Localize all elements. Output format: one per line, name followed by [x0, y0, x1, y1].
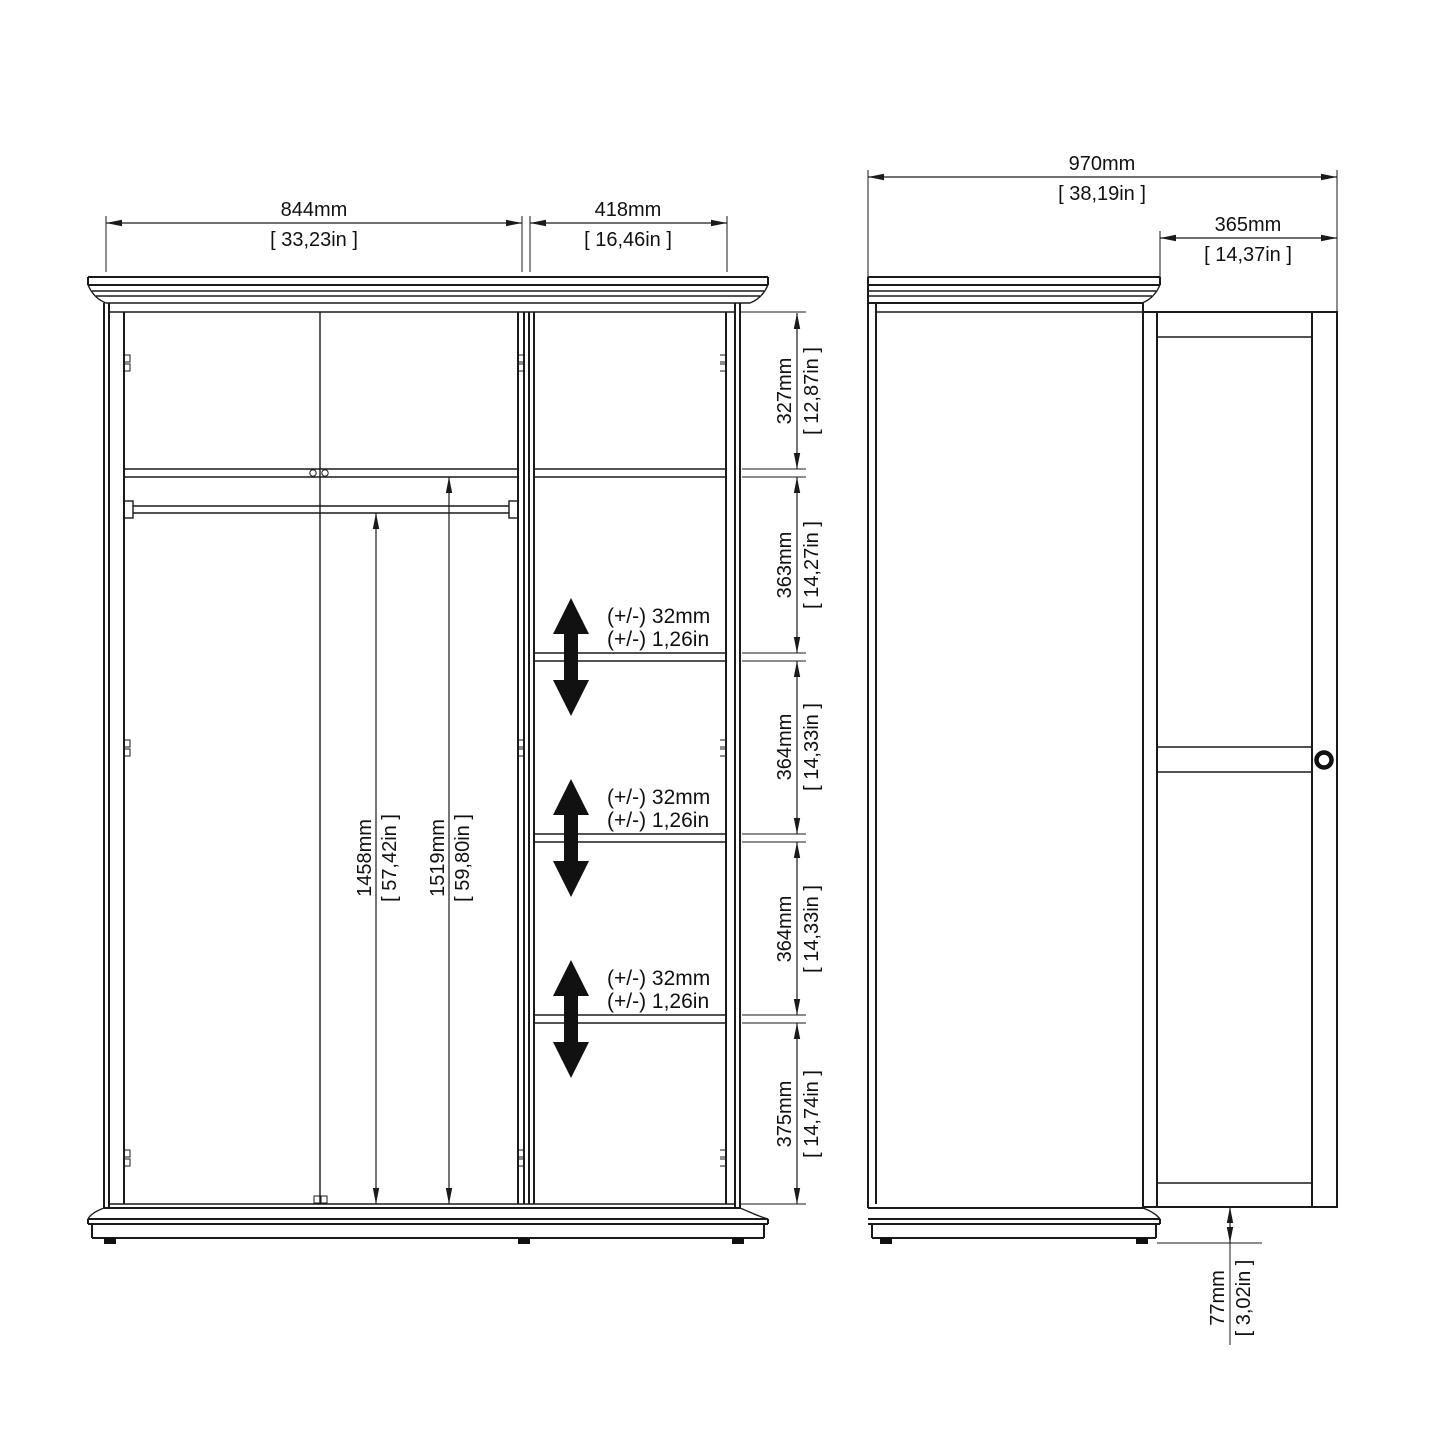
section-label-mm: 363mm: [774, 532, 796, 599]
adjustable-label-inch: (+/-) 1,26in: [607, 809, 709, 832]
section-label-mm: 375mm: [774, 1081, 796, 1148]
left-stile: [104, 303, 124, 1208]
side-view: 970mm [ 38,19in ] 365mm [ 14,37in ]: [868, 153, 1337, 1345]
left-top-shelf: [124, 469, 518, 477]
door-knob: [1317, 753, 1332, 768]
cornice-top-band: [88, 277, 768, 285]
right-shelf-2: [534, 653, 726, 661]
adjustable-shelf-indicators: (+/-) 32mm (+/-) 1,26in (+/-) 32mm (+/-)…: [553, 598, 710, 1078]
back-edge: [868, 277, 876, 1208]
dim-plinth-height: 77mm [ 3,02in ]: [1157, 1207, 1262, 1345]
section-label-mm: 364mm: [774, 714, 796, 781]
front-view: 844mm [ 33,23in ] 418mm [ 16,46in ] 327m…: [88, 199, 823, 1244]
base-bands: [868, 1219, 1160, 1238]
section-label-inch: [ 14,33in ]: [801, 703, 823, 791]
door-outline: [1143, 312, 1337, 1207]
side-base: [868, 1208, 1160, 1244]
shelf-pin-hole: [322, 470, 328, 476]
foot: [104, 1238, 116, 1244]
foot: [880, 1238, 892, 1244]
adjustable-label-inch: (+/-) 1,26in: [607, 628, 709, 651]
base-flare-curve: [1143, 1208, 1160, 1219]
foot: [1136, 1238, 1148, 1244]
section-label-inch: [ 14,74in ]: [801, 1070, 823, 1158]
dim-width-right: 418mm [ 16,46in ]: [530, 199, 727, 272]
dim-label-mm: 365mm: [1215, 214, 1282, 236]
dim-rail-height: 1458mm [ 57,42in ]: [354, 513, 401, 1204]
open-door: [1143, 312, 1337, 1207]
dim-label-inch: [ 14,37in ]: [1204, 244, 1292, 266]
dim-label-mm: 1458mm: [354, 819, 376, 897]
center-divider: [518, 312, 534, 1204]
adjustable-label-mm: (+/-) 32mm: [607, 967, 710, 990]
rail-bracket-right: [509, 501, 518, 518]
front-shelves: [124, 469, 726, 1023]
double-arrow-icon: [553, 960, 589, 1078]
dim-label-mm: 970mm: [1069, 153, 1136, 175]
dim-interior-height: 1519mm [ 59,80in ]: [427, 477, 474, 1204]
adjustable-label-mm: (+/-) 32mm: [607, 786, 710, 809]
dim-label-mm: 844mm: [281, 199, 348, 221]
extension-lines: [740, 312, 806, 1204]
section-label-mm: 364mm: [774, 896, 796, 963]
rail-bracket-left: [124, 501, 133, 518]
dim-door-width: 365mm [ 14,37in ]: [1160, 214, 1337, 277]
dim-label-inch: [ 33,23in ]: [270, 229, 358, 251]
cornice-molding-lines: [92, 291, 764, 303]
base-bands: [88, 1219, 768, 1238]
hanging-rail: [124, 501, 518, 518]
double-arrow-icon: [553, 598, 589, 716]
dim-label-inch: [ 38,19in ]: [1058, 183, 1146, 205]
front-carcass: [104, 303, 740, 1208]
foot: [518, 1238, 530, 1244]
dim-label-mm: 418mm: [595, 199, 662, 221]
door-catch-left: [314, 1196, 320, 1203]
adjustable-label-inch: (+/-) 1,26in: [607, 990, 709, 1013]
right-stile: [726, 303, 740, 1208]
wardrobe-dimension-diagram: 844mm [ 33,23in ] 418mm [ 16,46in ] 327m…: [0, 0, 1445, 1445]
dim-label-inch: [ 16,46in ]: [584, 229, 672, 251]
side-carcass: [868, 277, 1143, 1208]
section-label-mm: 327mm: [774, 358, 796, 425]
rail-bar: [133, 506, 509, 513]
door-rails: [1157, 337, 1312, 1183]
section-label-inch: [ 12,87in ]: [801, 347, 823, 435]
dim-label-mm: 1519mm: [427, 819, 449, 897]
front-cornice: [88, 277, 768, 303]
cornice-top-band: [868, 277, 1160, 285]
dim-sections: 327mm [ 12,87in ] 363mm [ 14,27in ] 364m…: [740, 312, 823, 1204]
foot: [732, 1238, 744, 1244]
cornice-end-curve: [1142, 285, 1160, 303]
dim-width-left: 844mm [ 33,23in ]: [106, 199, 522, 272]
adjustable-label-mm: (+/-) 32mm: [607, 605, 710, 628]
shelf-pin-hole: [310, 470, 316, 476]
section-label-inch: [ 14,33in ]: [801, 885, 823, 973]
dim-label-mm: 77mm: [1207, 1270, 1229, 1326]
double-arrow-icon: [553, 779, 589, 897]
section-label-inch: [ 14,27in ]: [801, 521, 823, 609]
dim-label-inch: [ 3,02in ]: [1233, 1260, 1255, 1337]
right-shelf-4: [534, 1015, 726, 1023]
right-shelf-1: [534, 469, 726, 477]
side-cornice: [868, 277, 1160, 303]
cornice-molding-lines: [868, 291, 1156, 303]
dim-label-inch: [ 59,80in ]: [452, 814, 474, 902]
dim-label-inch: [ 57,42in ]: [379, 814, 401, 902]
cornice-end-curves: [88, 285, 768, 303]
front-base: [88, 1208, 768, 1244]
door-catch-right: [321, 1196, 327, 1203]
technical-drawing-canvas: 844mm [ 33,23in ] 418mm [ 16,46in ] 327m…: [0, 0, 1445, 1445]
base-flare-curves: [88, 1208, 768, 1219]
right-shelf-3: [534, 834, 726, 842]
